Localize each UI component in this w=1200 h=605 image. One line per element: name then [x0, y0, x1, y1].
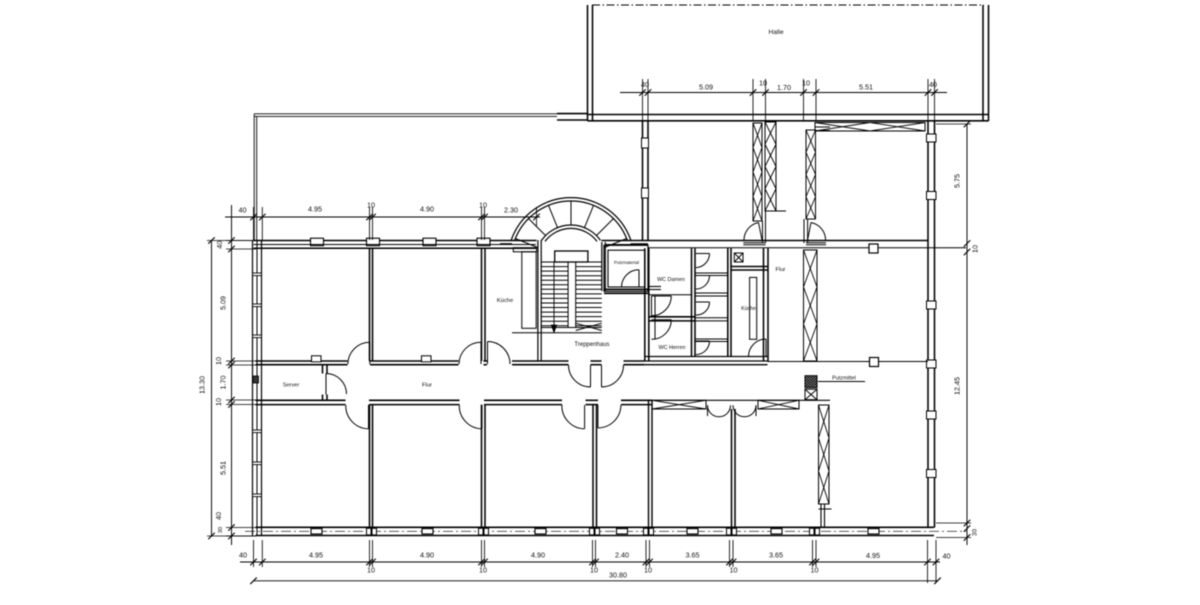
- svg-text:10: 10: [730, 566, 738, 575]
- svg-text:4.90: 4.90: [420, 205, 434, 214]
- svg-text:10: 10: [759, 79, 767, 88]
- svg-text:5.51: 5.51: [219, 461, 228, 475]
- svg-text:4.95: 4.95: [866, 551, 880, 560]
- svg-text:10: 10: [644, 566, 652, 575]
- svg-text:4.90: 4.90: [420, 551, 434, 560]
- svg-text:40: 40: [239, 551, 247, 560]
- svg-text:Treppenhaus: Treppenhaus: [574, 342, 609, 348]
- svg-text:40: 40: [239, 206, 247, 215]
- svg-text:Halle: Halle: [768, 29, 783, 36]
- svg-text:10: 10: [214, 398, 223, 406]
- svg-text:Küche: Küche: [741, 306, 756, 312]
- svg-text:40: 40: [943, 552, 951, 561]
- svg-text:Flur: Flur: [422, 383, 432, 389]
- svg-text:5.51: 5.51: [859, 83, 873, 92]
- svg-text:10: 10: [479, 201, 487, 210]
- svg-text:40: 40: [929, 80, 937, 89]
- svg-text:4.95: 4.95: [308, 205, 322, 214]
- svg-text:5.09: 5.09: [699, 83, 713, 92]
- svg-text:10: 10: [802, 79, 810, 88]
- svg-text:3.65: 3.65: [769, 551, 783, 560]
- svg-text:1.70: 1.70: [219, 376, 228, 390]
- svg-text:10: 10: [971, 245, 980, 253]
- svg-text:Küche: Küche: [497, 298, 513, 304]
- svg-text:2.30: 2.30: [504, 206, 518, 215]
- svg-text:13.30: 13.30: [198, 376, 207, 394]
- svg-text:40: 40: [214, 512, 223, 520]
- svg-text:Server: Server: [283, 383, 300, 389]
- svg-text:10: 10: [214, 357, 223, 365]
- svg-text:1.70: 1.70: [777, 83, 791, 92]
- svg-text:Putzmittel: Putzmittel: [832, 376, 856, 382]
- svg-text:Putzmaterial: Putzmaterial: [614, 260, 639, 265]
- svg-text:12.45: 12.45: [953, 377, 962, 395]
- svg-text:40: 40: [215, 241, 224, 249]
- svg-text:5.09: 5.09: [219, 296, 228, 310]
- svg-text:4.95: 4.95: [309, 551, 323, 560]
- svg-text:10: 10: [811, 566, 819, 575]
- svg-text:10: 10: [590, 566, 598, 575]
- svg-text:30: 30: [218, 527, 224, 533]
- svg-text:WC Herren: WC Herren: [659, 345, 686, 351]
- svg-text:WC Damen: WC Damen: [657, 277, 685, 283]
- svg-text:40: 40: [641, 80, 649, 89]
- svg-text:30.80: 30.80: [609, 571, 627, 580]
- svg-text:10: 10: [367, 566, 375, 575]
- svg-text:Flur: Flur: [776, 267, 786, 273]
- svg-text:5.75: 5.75: [953, 174, 962, 188]
- svg-text:2.40: 2.40: [615, 551, 629, 560]
- svg-text:4.90: 4.90: [531, 551, 545, 560]
- svg-text:10: 10: [367, 201, 375, 210]
- svg-text:10: 10: [479, 566, 487, 575]
- svg-text:3.65: 3.65: [686, 551, 700, 560]
- svg-text:30: 30: [972, 529, 979, 536]
